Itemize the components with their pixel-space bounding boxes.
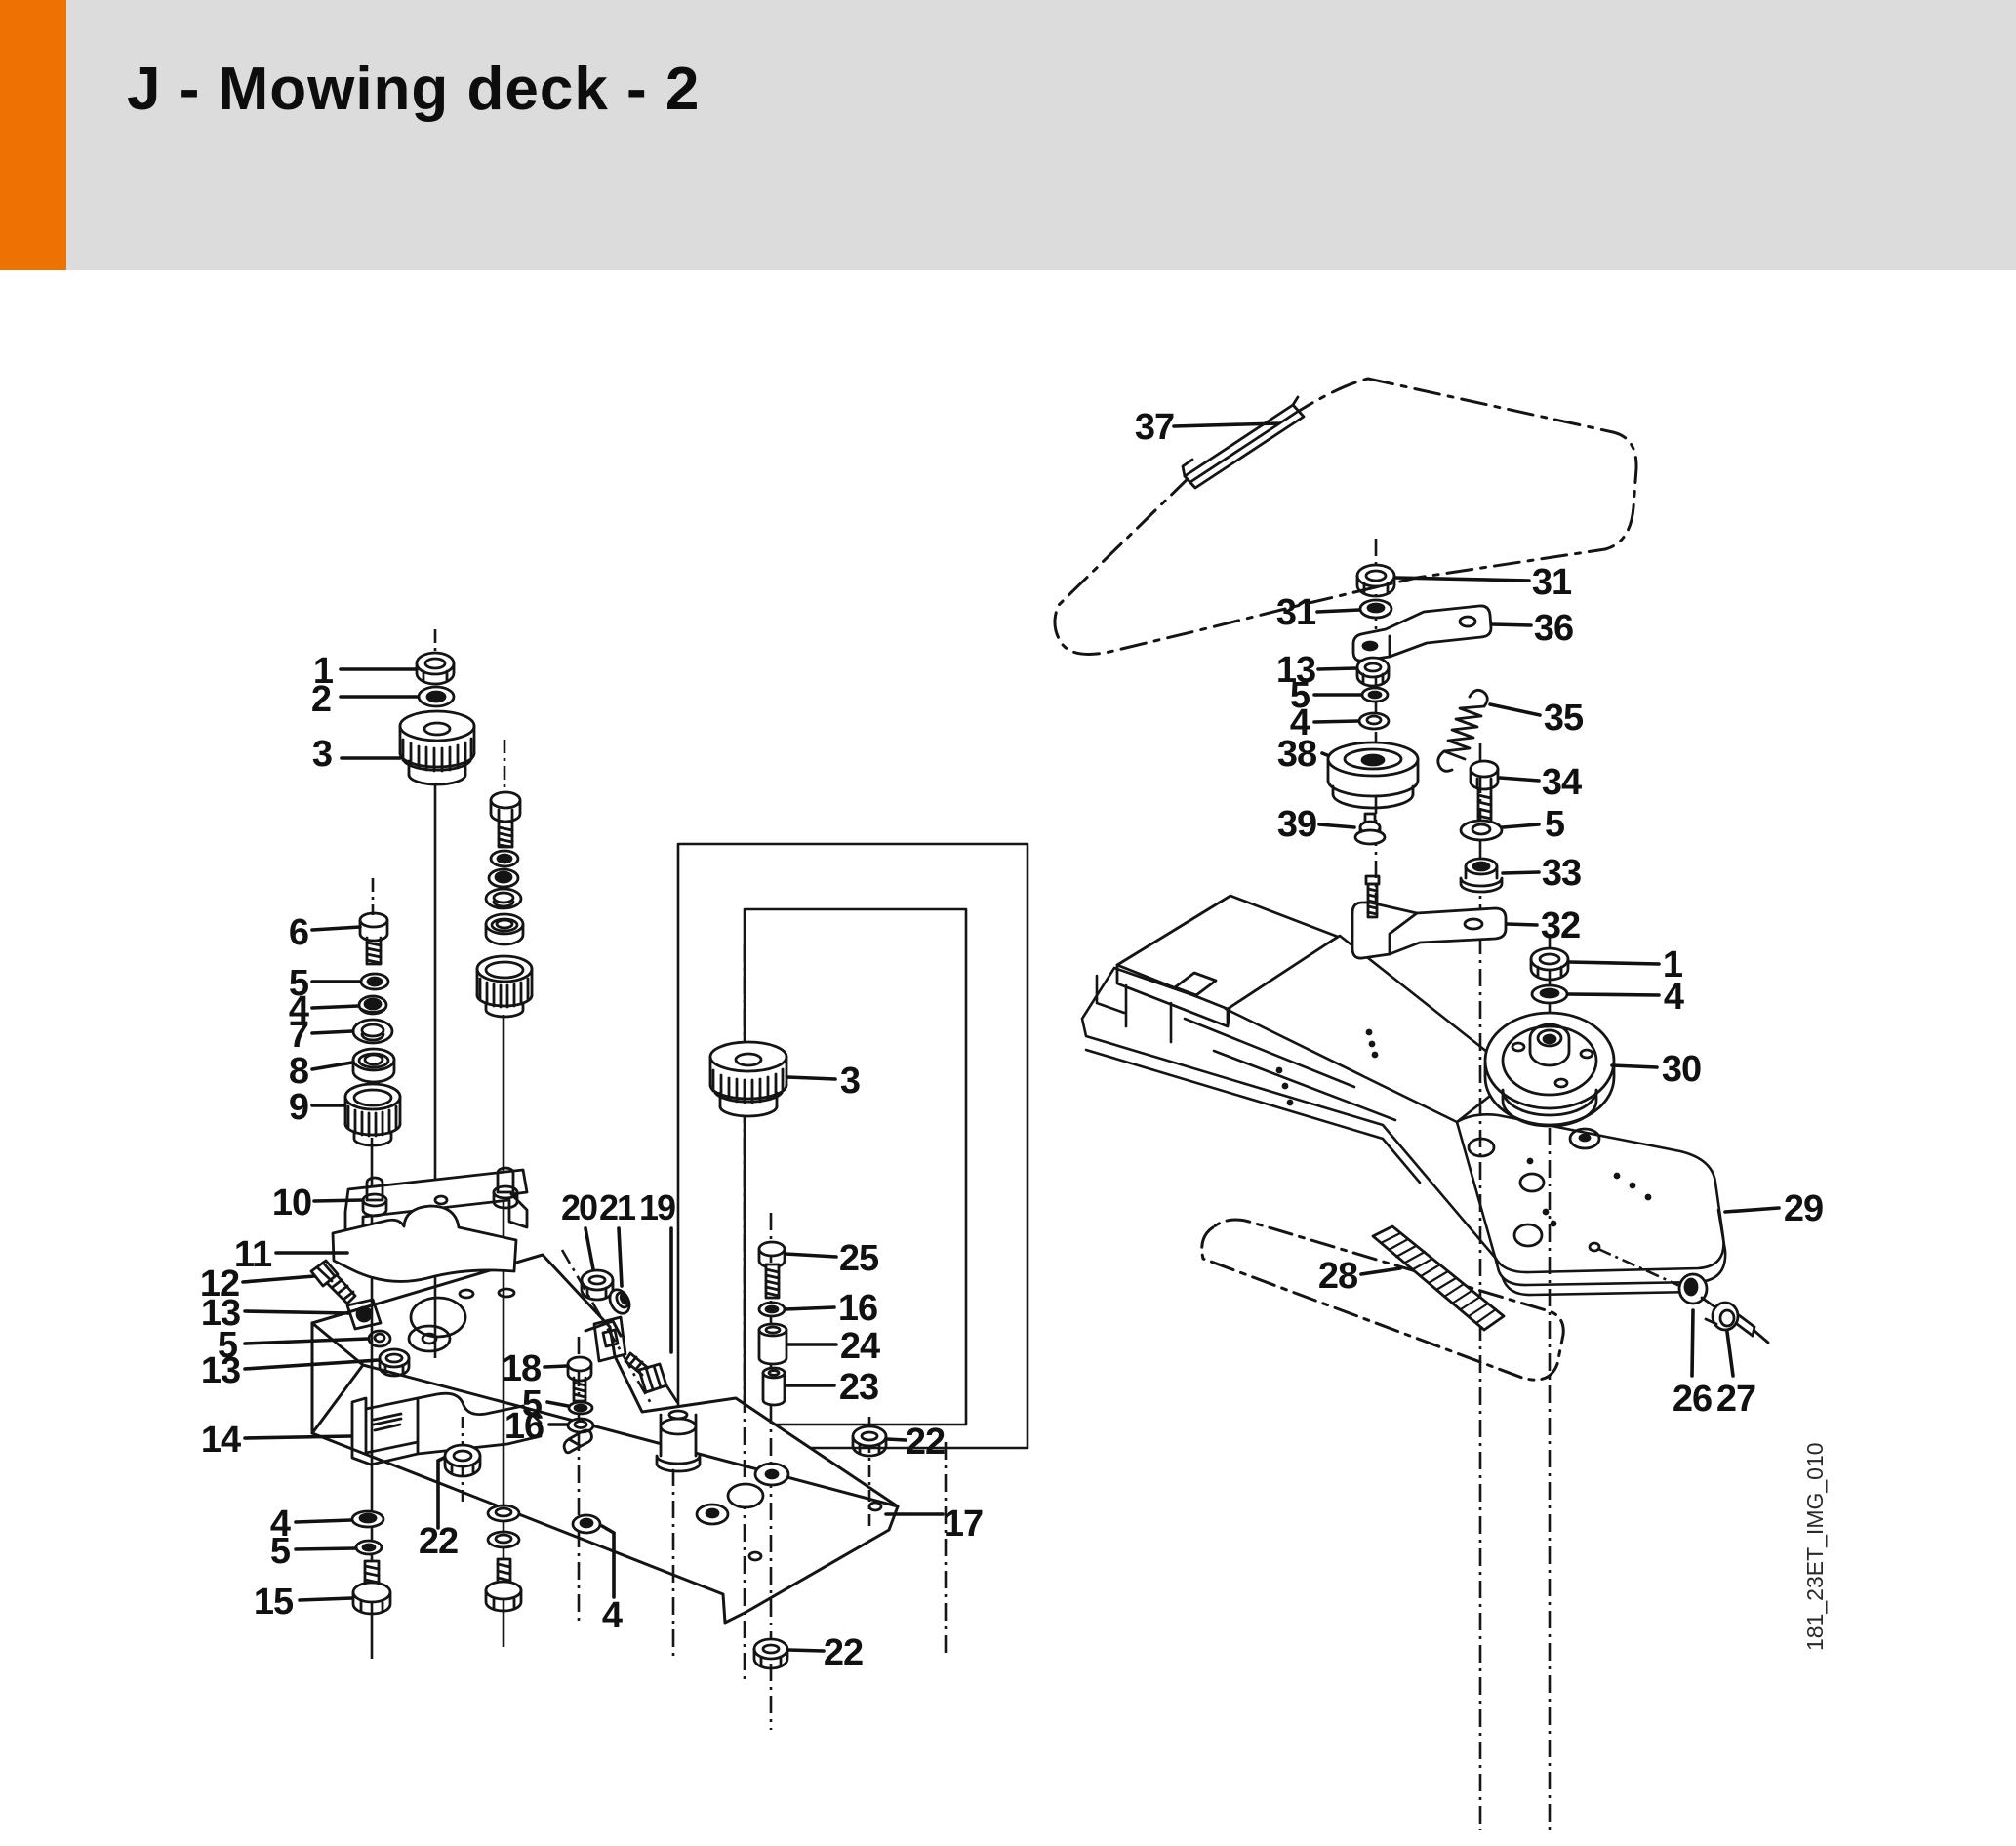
svg-text:21: 21 <box>599 1187 636 1227</box>
svg-text:3: 3 <box>312 734 332 775</box>
svg-text:17: 17 <box>944 1504 983 1545</box>
svg-text:28: 28 <box>1318 1256 1357 1297</box>
svg-text:36: 36 <box>1534 608 1573 649</box>
svg-text:22: 22 <box>824 1632 863 1673</box>
svg-text:16: 16 <box>838 1288 877 1329</box>
svg-text:4: 4 <box>602 1595 623 1636</box>
svg-text:26: 26 <box>1673 1379 1712 1420</box>
svg-text:23: 23 <box>839 1367 878 1408</box>
svg-text:29: 29 <box>1784 1188 1823 1229</box>
svg-text:16: 16 <box>504 1406 544 1447</box>
svg-text:25: 25 <box>839 1238 879 1279</box>
svg-text:27: 27 <box>1716 1379 1755 1420</box>
svg-text:38: 38 <box>1277 734 1316 775</box>
svg-text:32: 32 <box>1541 905 1580 946</box>
svg-text:3: 3 <box>840 1061 860 1102</box>
svg-text:22: 22 <box>906 1422 945 1463</box>
svg-text:5: 5 <box>1545 804 1565 845</box>
svg-text:6: 6 <box>289 912 308 953</box>
svg-text:9: 9 <box>289 1087 308 1128</box>
svg-text:8: 8 <box>289 1051 308 1092</box>
svg-text:34: 34 <box>1542 762 1582 803</box>
svg-text:19: 19 <box>639 1187 675 1227</box>
svg-text:4: 4 <box>1664 977 1684 1018</box>
svg-text:24: 24 <box>840 1326 880 1367</box>
svg-text:13: 13 <box>201 1350 240 1391</box>
svg-text:5: 5 <box>270 1531 291 1572</box>
svg-text:31: 31 <box>1532 562 1572 603</box>
svg-text:10: 10 <box>272 1183 311 1224</box>
svg-text:37: 37 <box>1135 407 1174 448</box>
svg-text:7: 7 <box>289 1015 308 1056</box>
svg-text:33: 33 <box>1542 853 1581 894</box>
svg-text:20: 20 <box>561 1187 597 1227</box>
svg-text:30: 30 <box>1662 1049 1701 1090</box>
svg-text:31: 31 <box>1276 592 1316 633</box>
svg-text:14: 14 <box>201 1420 241 1461</box>
svg-text:22: 22 <box>419 1521 458 1562</box>
svg-text:J - Mowing deck - 2: J - Mowing deck - 2 <box>127 56 700 123</box>
svg-text:11: 11 <box>234 1234 272 1275</box>
svg-text:15: 15 <box>254 1582 294 1623</box>
svg-text:2: 2 <box>311 679 331 720</box>
svg-text:35: 35 <box>1544 698 1584 739</box>
svg-text:181_23ET_IMG_010: 181_23ET_IMG_010 <box>1802 1442 1828 1651</box>
svg-text:39: 39 <box>1277 804 1316 845</box>
